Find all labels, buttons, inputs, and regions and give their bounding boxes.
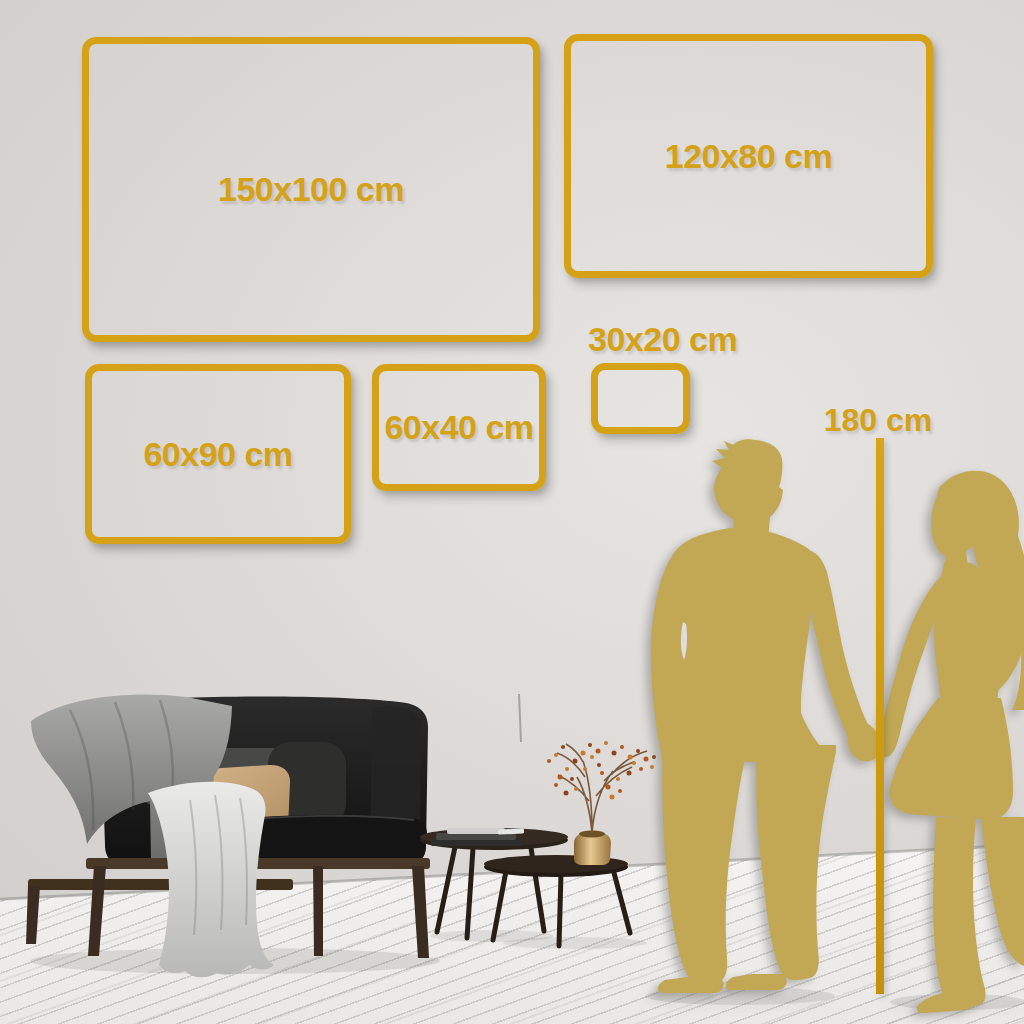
height-ruler-line: [876, 438, 884, 994]
size-frame-60x90-label: 60x90 cm: [143, 435, 292, 474]
size-frame-60x40: 60x40 cm: [372, 364, 546, 491]
wall-art-size-guide-scene: 150x100 cm 120x80 cm 60x90 cm 60x40 cm 3…: [0, 0, 1024, 1024]
size-frame-150x100: 150x100 cm: [82, 37, 540, 342]
size-frame-120x80-label: 120x80 cm: [665, 137, 833, 176]
man-left-foot: [658, 977, 724, 993]
woman-front-leg: [933, 817, 985, 1008]
size-frame-30x20-label: 30x20 cm: [588, 320, 737, 359]
size-frame-60x40-label: 60x40 cm: [384, 408, 533, 447]
man-silhouette: [651, 439, 881, 993]
size-frame-30x20: [591, 363, 690, 434]
woman-skirt: [890, 698, 1013, 820]
man-right-leg: [756, 745, 836, 980]
woman-silhouette: [878, 471, 1024, 1013]
woman-back-leg: [981, 817, 1024, 966]
size-frame-60x90: 60x90 cm: [85, 364, 351, 544]
size-frame-150x100-label: 150x100 cm: [218, 170, 404, 209]
man-head: [712, 439, 783, 543]
man-left-leg: [662, 745, 748, 983]
man-right-foot: [726, 974, 787, 990]
size-frame-120x80: 120x80 cm: [564, 34, 933, 278]
height-ruler-label: 180 cm: [824, 402, 933, 439]
